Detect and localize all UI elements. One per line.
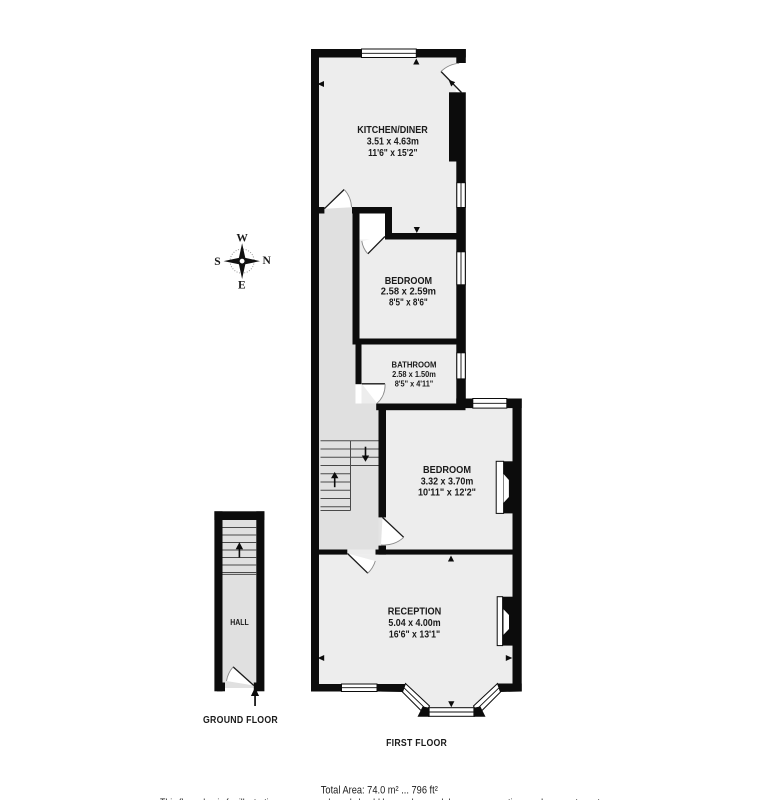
svg-text:E: E (238, 279, 246, 291)
svg-text:KITCHEN/DINER: KITCHEN/DINER (357, 125, 428, 136)
svg-text:HALL: HALL (230, 617, 249, 627)
svg-text:BEDROOM: BEDROOM (423, 465, 471, 476)
svg-text:5.04 x 4.00m: 5.04 x 4.00m (388, 618, 440, 629)
svg-text:3.51 x 4.63m: 3.51 x 4.63m (367, 137, 419, 148)
svg-text:8'5" x 8'6": 8'5" x 8'6" (389, 298, 428, 309)
svg-text:10'11" x 12'2": 10'11" x 12'2" (418, 488, 476, 499)
svg-text:RECEPTION: RECEPTION (388, 607, 442, 618)
svg-text:GROUND FLOOR: GROUND FLOOR (203, 715, 278, 726)
svg-text:BEDROOM: BEDROOM (385, 276, 432, 287)
svg-text:W: W (236, 233, 248, 245)
svg-text:16'6" x 13'1": 16'6" x 13'1" (389, 629, 441, 640)
svg-text:2.58 x 2.59m: 2.58 x 2.59m (381, 287, 436, 298)
svg-text:8'5" x 4'11": 8'5" x 4'11" (395, 378, 434, 388)
svg-text:FIRST FLOOR: FIRST FLOOR (386, 738, 447, 749)
svg-text:Total Area: 74.0 m² ... 796 ft: Total Area: 74.0 m² ... 796 ft² (321, 785, 438, 797)
svg-text:S: S (214, 256, 220, 268)
svg-text:3.32 x 3.70m: 3.32 x 3.70m (421, 476, 474, 487)
svg-text:N: N (262, 255, 271, 267)
svg-text:11'6" x 15'2": 11'6" x 15'2" (368, 148, 418, 159)
